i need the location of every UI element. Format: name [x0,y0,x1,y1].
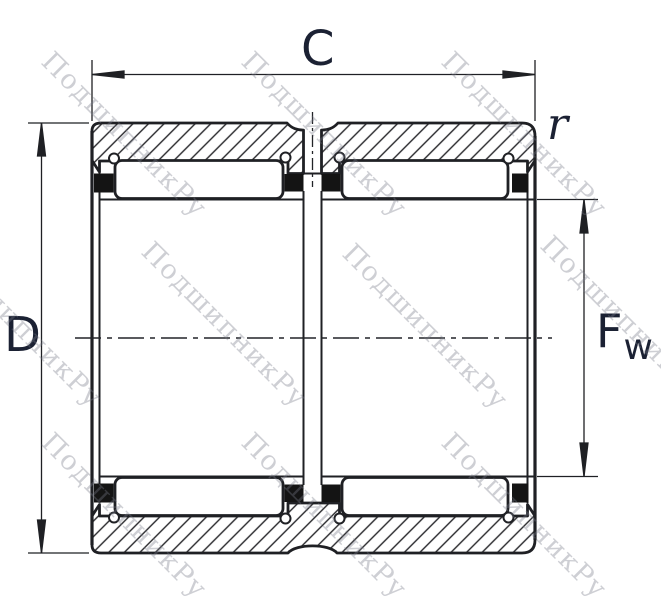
needle-roller [115,161,283,199]
dimension-fw [537,200,598,477]
cage-block [285,175,303,192]
arrowhead-left [92,71,124,78]
needle-roller [342,478,508,516]
dimension-label-fw-main: F [596,304,622,358]
bearing-cross-section-drawing [0,0,661,605]
cage-block [285,485,303,502]
arrowhead-up [580,200,588,234]
arrowhead-up [38,123,46,156]
arrowhead-down [38,520,46,553]
cage-block [95,484,114,502]
cage-block [95,174,114,192]
dimension-label-c: C [301,25,335,73]
cage-block [322,485,340,502]
dimension-label-r: r [547,103,568,147]
cage-block [513,174,529,192]
technical-drawing-canvas: C D r Fw ПодшипникРу ПодшипникРу Подшипн… [0,0,661,605]
dimension-label-fw-sub: w [623,327,652,368]
arrowhead-down [580,443,588,477]
arrowhead-right [503,71,535,78]
dimension-label-fw: Fw [596,308,652,354]
cage-block [322,175,340,192]
needle-roller [115,478,283,516]
needle-roller [342,161,508,199]
dimension-label-d: D [4,311,41,359]
cage-block [513,484,529,502]
